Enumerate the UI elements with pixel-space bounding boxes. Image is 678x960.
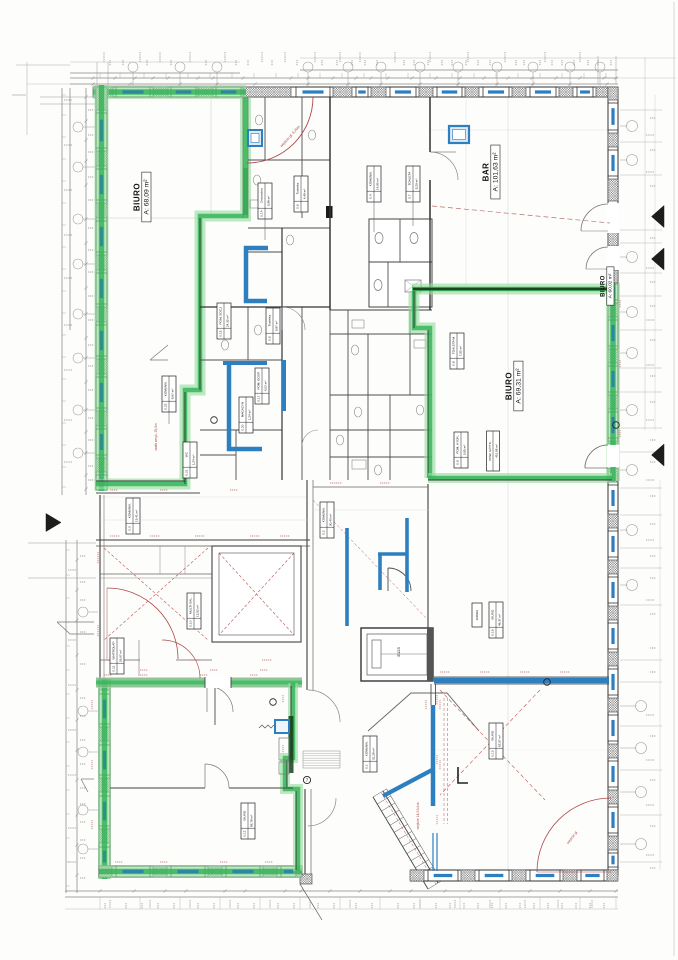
svg-text:0.13: 0.13: [491, 750, 495, 756]
svg-text:BIURO: BIURO: [491, 609, 495, 619]
svg-text:0.2: 0.2: [322, 530, 326, 535]
svg-text:BIURO: BIURO: [505, 372, 514, 400]
svg-text:13,41 m²: 13,41 m²: [135, 510, 139, 522]
svg-text:58,78 m²: 58,78 m²: [250, 815, 254, 827]
svg-text:KOMUNIK.: KOMUNIK.: [369, 171, 373, 186]
svg-text:26,67 m²: 26,67 m²: [119, 650, 123, 662]
svg-text:0.8: 0.8: [452, 361, 456, 366]
svg-text:szafa wnęk. 25,5m: szafa wnęk. 25,5m: [154, 423, 158, 451]
svg-text:KOMUNIK.: KOMUNIK.: [164, 381, 168, 396]
svg-text:0.21: 0.21: [185, 469, 189, 475]
svg-text:A: 68,09 m²: A: 68,09 m²: [144, 179, 151, 215]
svg-text:0.12: 0.12: [243, 830, 247, 836]
svg-text:E123: E123: [396, 647, 401, 657]
svg-text:POM. HYDR.: POM. HYDR.: [456, 435, 460, 454]
svg-text:WIATROŁAP: WIATROŁAP: [112, 642, 116, 660]
svg-text:A: 60,02 m²: A: 60,02 m²: [608, 273, 614, 298]
svg-text:62,57 m²: 62,57 m²: [498, 735, 502, 747]
svg-text:WC: WC: [185, 451, 189, 457]
svg-text:5,29 m²: 5,29 m²: [415, 179, 419, 190]
svg-text:3,55 m²: 3,55 m²: [463, 445, 467, 456]
svg-text:0.20: 0.20: [241, 424, 245, 430]
svg-text:7,50 m²: 7,50 m²: [459, 346, 463, 357]
svg-text:0.4: 0.4: [369, 194, 373, 199]
svg-text:KOMUNIK.: KOMUNIK.: [365, 741, 369, 756]
svg-text:31,28 m²: 31,28 m²: [372, 748, 376, 760]
svg-text:Toaletka: Toaletka: [296, 183, 300, 195]
svg-text:0.5: 0.5: [268, 336, 272, 341]
svg-text:KOMUNIK.: KOMUNIK.: [322, 507, 326, 522]
svg-text:BIURO: BIURO: [601, 275, 607, 297]
svg-text:WINDA: WINDA: [475, 609, 479, 620]
svg-text:0.9: 0.9: [456, 460, 460, 465]
svg-text:A: 69,31 m²: A: 69,31 m²: [516, 368, 523, 404]
svg-text:0.22: 0.22: [164, 403, 168, 409]
svg-text:30,43 m²: 30,43 m²: [329, 514, 333, 526]
svg-text:4,02 m²: 4,02 m²: [264, 381, 268, 392]
svg-text:8,67 m²: 8,67 m²: [171, 389, 175, 400]
svg-text:TOALETA M: TOALETA M: [452, 337, 456, 354]
svg-text:3,98 m²: 3,98 m²: [267, 196, 271, 207]
svg-text:0.11: 0.11: [112, 665, 116, 671]
svg-text:13,52 m²: 13,52 m²: [196, 605, 200, 617]
svg-text:wejście 14,00x1m: wejście 14,00x1m: [416, 802, 420, 829]
svg-text:451,88 m²: 451,88 m²: [494, 444, 498, 458]
svg-text:A: 101,63 m²: A: 101,63 m²: [493, 152, 500, 192]
svg-text:1,24 m²: 1,24 m²: [192, 455, 196, 466]
svg-text:0.14: 0.14: [260, 210, 264, 216]
svg-text:Toaletka: Toaletka: [268, 315, 272, 327]
svg-text:4,48 m²: 4,48 m²: [303, 189, 307, 200]
svg-text:TOALETA: TOALETA: [408, 171, 412, 186]
svg-text:BAR: BAR: [482, 163, 491, 182]
svg-text:7: 7: [306, 777, 309, 782]
svg-text:0.3: 0.3: [128, 526, 132, 531]
svg-text:MAGAZYN: MAGAZYN: [241, 402, 245, 417]
svg-text:BIURO: BIURO: [133, 183, 142, 211]
svg-text:POW. UŻYTK.: POW. UŻYTK.: [487, 441, 492, 461]
svg-text:0.1: 0.1: [365, 764, 369, 769]
svg-text:9,87 m²: 9,87 m²: [275, 321, 279, 332]
svg-text:BIURO: BIURO: [243, 810, 247, 820]
svg-text:0.19: 0.19: [491, 629, 495, 635]
svg-text:wejście gł.: wejście gł.: [566, 830, 579, 845]
svg-text:24,32 m²: 24,32 m²: [226, 315, 230, 327]
svg-text:1,24 m²: 1,24 m²: [248, 410, 252, 421]
svg-text:0.7: 0.7: [408, 194, 412, 199]
svg-text:BIURO: BIURO: [491, 730, 495, 740]
svg-text:0.15: 0.15: [219, 330, 223, 336]
svg-text:0.17: 0.17: [257, 395, 261, 401]
svg-text:POM. SOCJ.: POM. SOCJ.: [219, 307, 223, 325]
svg-text:wejście gł. 8,20m: wejście gł. 8,20m: [280, 125, 301, 148]
svg-text:KOMUNIK.: KOMUNIK.: [128, 503, 132, 518]
svg-text:14,80 m²: 14,80 m²: [376, 178, 380, 190]
svg-text:0.6: 0.6: [296, 204, 300, 209]
svg-text:POM. GOSP.: POM. GOSP.: [257, 371, 261, 389]
svg-text:Zmywalnia: Zmywalnia: [260, 188, 264, 203]
svg-text:MULTI-SAL.: MULTI-SAL.: [189, 597, 193, 614]
svg-text:0.10: 0.10: [189, 620, 193, 626]
svg-text:48,37 m²: 48,37 m²: [498, 614, 502, 626]
